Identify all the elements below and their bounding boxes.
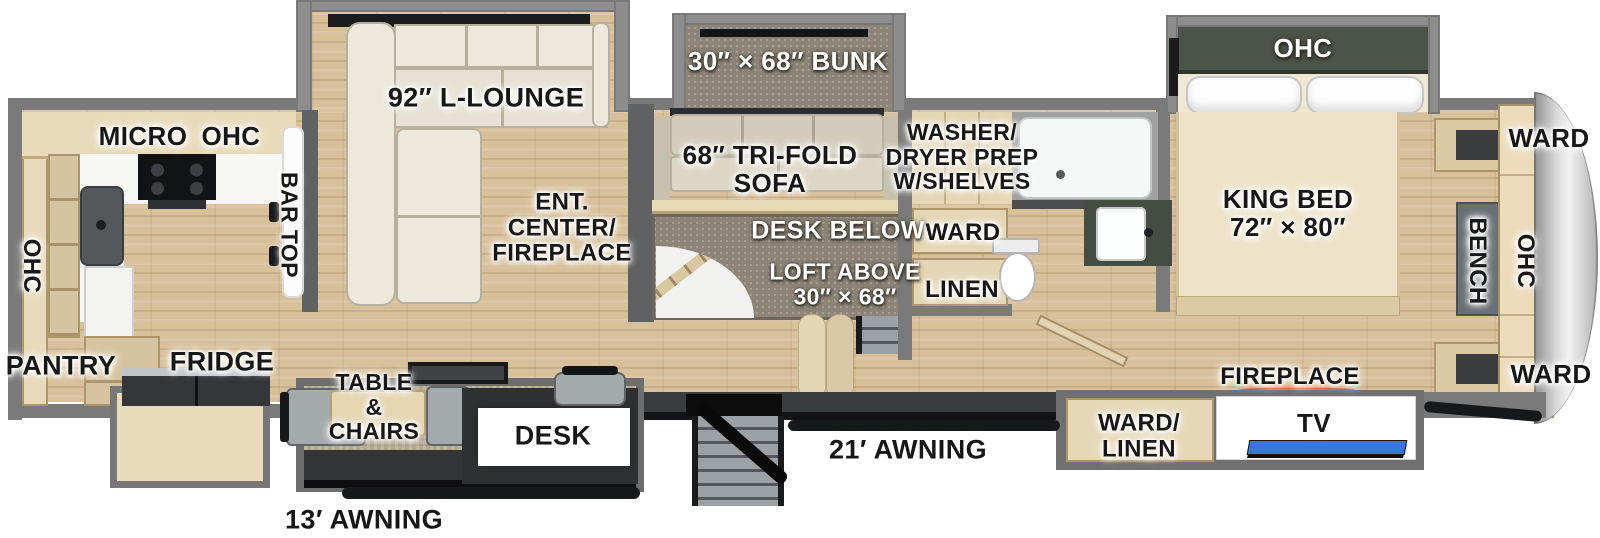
awning-rod-13ft [342, 487, 640, 499]
bar-wall [302, 110, 318, 312]
bunk-window [700, 29, 868, 37]
kitchen-bottom-wall [8, 404, 118, 418]
dinette-chair-arm [280, 392, 289, 442]
label-micro: MICRO [99, 123, 188, 151]
label-loft-above: LOFT ABOVE 30″ × 68″ [769, 259, 920, 308]
label-trifold-sofa: 68″ TRI-FOLD SOFA [683, 142, 858, 198]
label-l-lounge: 92″ L-LOUNGE [388, 84, 584, 113]
label-ward-hall: WARD [926, 220, 1001, 246]
shower-drain-icon [1056, 170, 1065, 179]
bedroom-steps-band [826, 314, 854, 400]
bunk-slide-wall-left [672, 13, 686, 112]
fridge-door-split [195, 376, 198, 406]
dresser-top-opening [1456, 130, 1504, 160]
l-lounge-back [394, 24, 608, 68]
toilet-bowl-icon [999, 252, 1036, 302]
label-ent-center: ENT. CENTER/ FIREPLACE [492, 189, 632, 266]
king-bed-foot [1176, 296, 1400, 316]
l-lounge-chaise [396, 128, 482, 304]
label-ward-front-top: WARD [1508, 125, 1589, 153]
label-awning-21: 21′ AWNING [829, 436, 987, 465]
label-pantry: PANTRY [6, 352, 116, 381]
label-fridge: FRIDGE [170, 348, 274, 377]
bunk-slide-wall-top [672, 13, 906, 25]
label-awning-13: 13′ AWNING [285, 506, 443, 535]
label-ohc-kitchen-top: OHC [202, 123, 261, 151]
label-tv: TV [1297, 410, 1331, 438]
l-lounge-arm-left [346, 22, 396, 306]
kitchen-faucet-icon [96, 220, 106, 230]
label-washer-dryer: WASHER/ DRYER PREP W/SHELVES [886, 120, 1039, 194]
ent-center-wall [628, 104, 654, 322]
dresser-bottom-opening [1456, 354, 1504, 384]
label-fireplace: FIREPLACE [1220, 364, 1360, 390]
vanity-sink-icon [1096, 207, 1146, 261]
lounge-slide-wall-top [296, 0, 630, 12]
wall-ledge [408, 362, 508, 384]
lounge-slide-wall-left [296, 0, 312, 112]
bed-slide-wall-top [1166, 15, 1440, 27]
awning-rod-21ft [788, 420, 1060, 431]
label-ohc-bedroom: OHC [1274, 35, 1333, 63]
label-ward-linen: WARD/ LINEN [1098, 410, 1180, 461]
pillow [1306, 76, 1424, 114]
label-ohc-kitchen-left: OHC [18, 239, 44, 294]
stove-icon [138, 154, 216, 200]
label-ward-front-bottom: WARD [1510, 361, 1591, 389]
desk-chair-back [562, 366, 618, 375]
label-linen-hall: LINEN [925, 277, 999, 303]
label-desk: DESK [515, 422, 592, 451]
dishwasher [84, 266, 134, 338]
label-bench: BENCH [1464, 217, 1490, 304]
pillow [1186, 76, 1302, 114]
bed-slide-wall-right [1428, 15, 1440, 114]
label-ohc-front: OHC [1512, 234, 1538, 289]
tv-screen-icon [1247, 440, 1408, 455]
bedroom-steps-band [798, 314, 826, 400]
label-bar-top: BAR TOP [277, 172, 302, 278]
desk-chair [554, 372, 626, 406]
rv-floorplan: MICRO OHC OHC PANTRY FRIDGE BAR TOP 92″ … [0, 0, 1600, 538]
loft-shelf-edge [652, 200, 904, 214]
stove-vent [148, 200, 206, 209]
label-king-bed: KING BED 72″ × 80″ [1223, 186, 1353, 242]
trifold-arm-left [654, 116, 670, 202]
label-desk-below: DESK BELOW [751, 218, 924, 245]
vanity-faucet-icon [1144, 228, 1153, 237]
kitchen-cabinets-left [48, 154, 80, 338]
label-bunk: 30″ × 68″ BUNK [688, 48, 888, 76]
l-lounge-arm-right [592, 22, 610, 128]
lounge-slide-wall-right [614, 0, 630, 112]
label-table-chairs: TABLE & CHAIRS [329, 370, 420, 444]
bunk-slide-wall-right [892, 13, 906, 112]
